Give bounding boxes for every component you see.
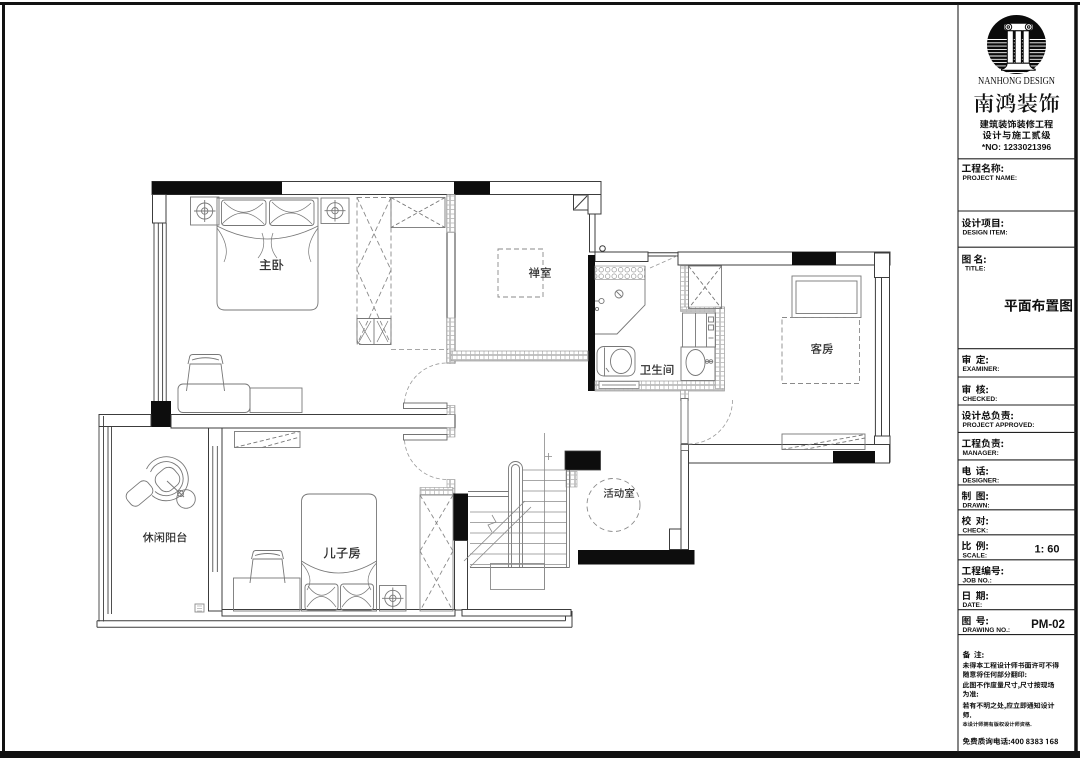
svg-text:PM-02: PM-02 (1031, 619, 1065, 631)
svg-text:NANHONG DESIGN: NANHONG DESIGN (978, 76, 1055, 87)
svg-text:PROJECT APPROVED:: PROJECT APPROVED: (963, 422, 1035, 429)
svg-text:1: 60: 1: 60 (1034, 544, 1059, 556)
svg-text:DESIGNER:: DESIGNER: (963, 477, 1000, 484)
svg-text:SCALE:: SCALE: (963, 552, 988, 559)
svg-text:DRAWN:: DRAWN: (963, 502, 990, 509)
svg-text:DATE:: DATE: (963, 602, 983, 609)
svg-text:PROJECT NAME:: PROJECT NAME: (963, 175, 1018, 182)
svg-text:DRAWING NO.:: DRAWING NO.: (963, 627, 1011, 634)
svg-text:TITLE:: TITLE: (965, 266, 986, 273)
svg-text:CHECKED:: CHECKED: (963, 396, 998, 403)
svg-text:JOB NO.:: JOB NO.: (963, 577, 992, 584)
svg-text:CHECK:: CHECK: (963, 527, 989, 534)
svg-text:EXAMINER:: EXAMINER: (963, 366, 1000, 373)
svg-text:MANAGER:: MANAGER: (963, 450, 999, 457)
svg-text:DESIGN ITEM:: DESIGN ITEM: (963, 230, 1008, 237)
svg-text:*NO: 1233021396: *NO: 1233021396 (982, 142, 1051, 152)
